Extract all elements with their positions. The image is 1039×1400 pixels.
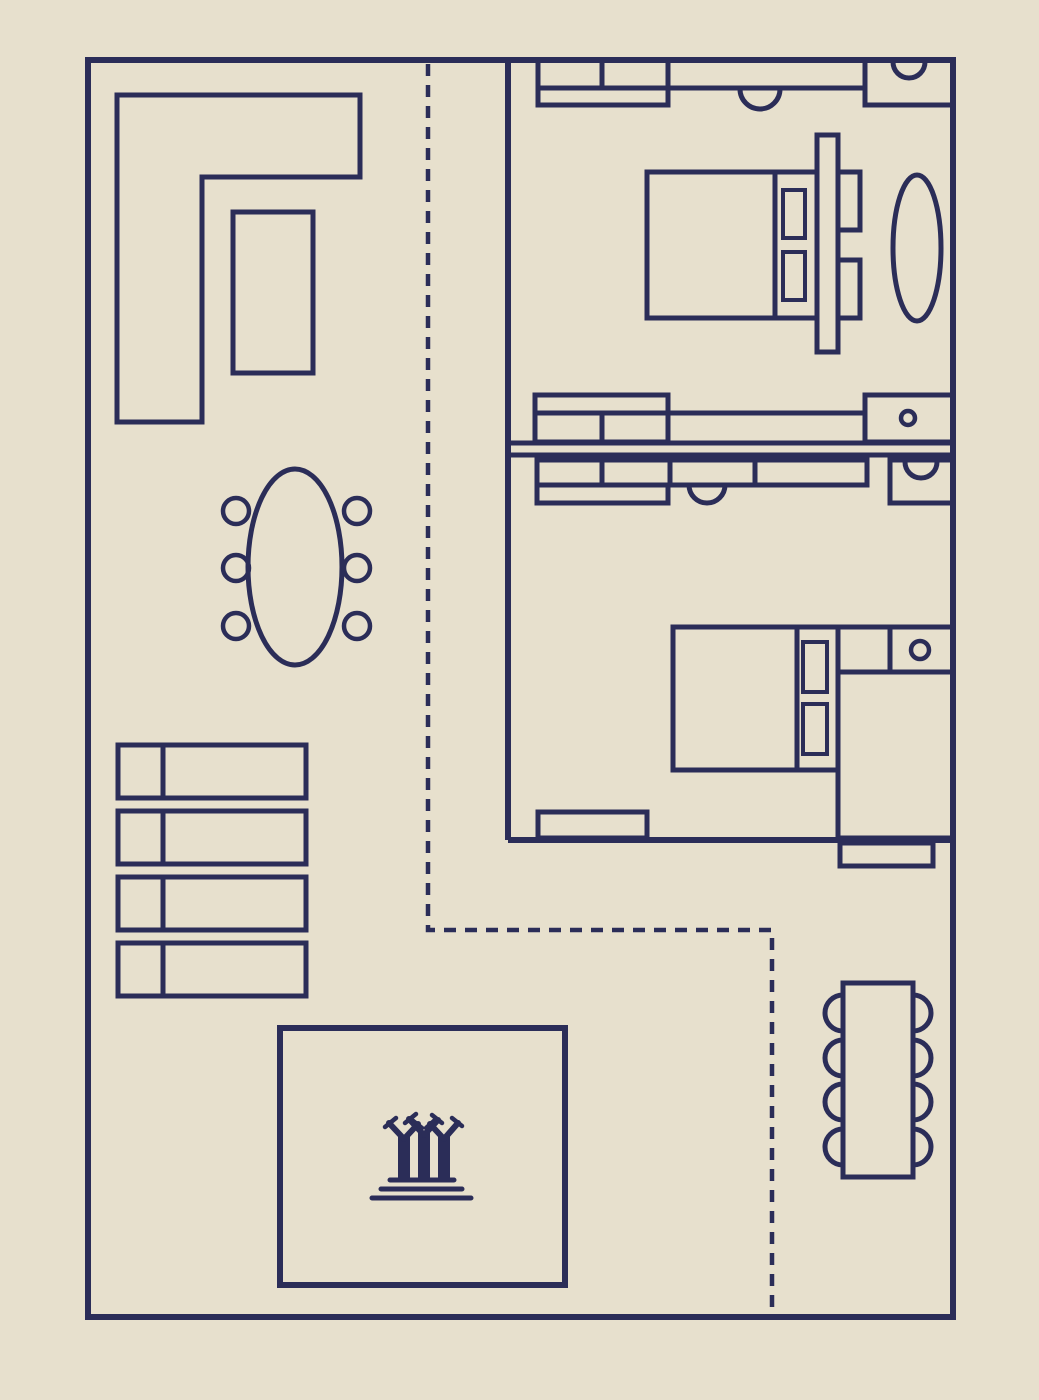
courtyard (280, 1028, 565, 1285)
wardrobe (838, 672, 953, 838)
cabinet-knob (901, 411, 915, 425)
nightstand (838, 172, 860, 230)
pillow (783, 252, 805, 300)
terrace-chair (913, 1129, 931, 1165)
outer-wall (88, 60, 953, 1317)
supertrees-icon-base (372, 1180, 471, 1198)
bed-frame (647, 172, 817, 318)
pillow (803, 704, 827, 754)
supertrees-icon-tips (385, 1114, 462, 1128)
headboard (817, 135, 838, 352)
walkway-dashed-path (428, 64, 772, 1314)
floor-plan-screenshot (0, 0, 1039, 1400)
floor-plan (0, 0, 1039, 1400)
living-area (117, 95, 360, 422)
terrace-chair (825, 1084, 843, 1120)
bed-frame (673, 627, 838, 770)
terrace-chair (913, 995, 931, 1031)
dining-chair (223, 555, 249, 581)
vanity-sink-arc (905, 462, 937, 478)
shelf-unit (118, 877, 306, 930)
terrace-chair (825, 995, 843, 1031)
terrace (825, 983, 931, 1177)
dining-chair (344, 498, 370, 524)
outdoor-table (843, 983, 913, 1177)
circulation (428, 64, 772, 1314)
terrace-chair (913, 1040, 931, 1076)
bedroom-lower (537, 460, 953, 866)
dining-table (248, 469, 342, 665)
vanity-cabinet (865, 60, 953, 105)
cabinet-run (537, 460, 867, 485)
bedside-rug (893, 175, 941, 321)
cabinet-knob-box (865, 395, 953, 442)
coffee-table (233, 212, 313, 373)
vanity-cabinet (890, 460, 953, 503)
terrace-chair (913, 1084, 931, 1120)
shelf-unit (118, 811, 306, 864)
shelf-unit (118, 745, 306, 798)
nightstand (838, 260, 860, 318)
supertrees-icon-trunks (404, 1131, 444, 1181)
cabinet-door-arc (689, 485, 725, 503)
shelf-unit (118, 943, 306, 996)
dining-chair (344, 555, 370, 581)
pillow (783, 190, 805, 238)
door-threshold (538, 812, 647, 838)
terrace-chair (825, 1129, 843, 1165)
dining-chair (223, 498, 249, 524)
dining-chair (344, 613, 370, 639)
cabinet-shelf (537, 485, 668, 503)
hall-cabinet (840, 843, 933, 866)
counter-door-arc (740, 89, 780, 109)
cabinet-knob (911, 641, 929, 659)
walls (88, 60, 953, 1317)
bedroom-upper (535, 60, 953, 442)
terrace-chair (825, 1040, 843, 1076)
dining-chair (223, 613, 249, 639)
nightstand-unit (838, 627, 953, 672)
vanity-sink-arc (893, 62, 925, 78)
pillow (803, 642, 827, 692)
storage-shelves (118, 745, 306, 996)
dining-area (223, 469, 370, 665)
